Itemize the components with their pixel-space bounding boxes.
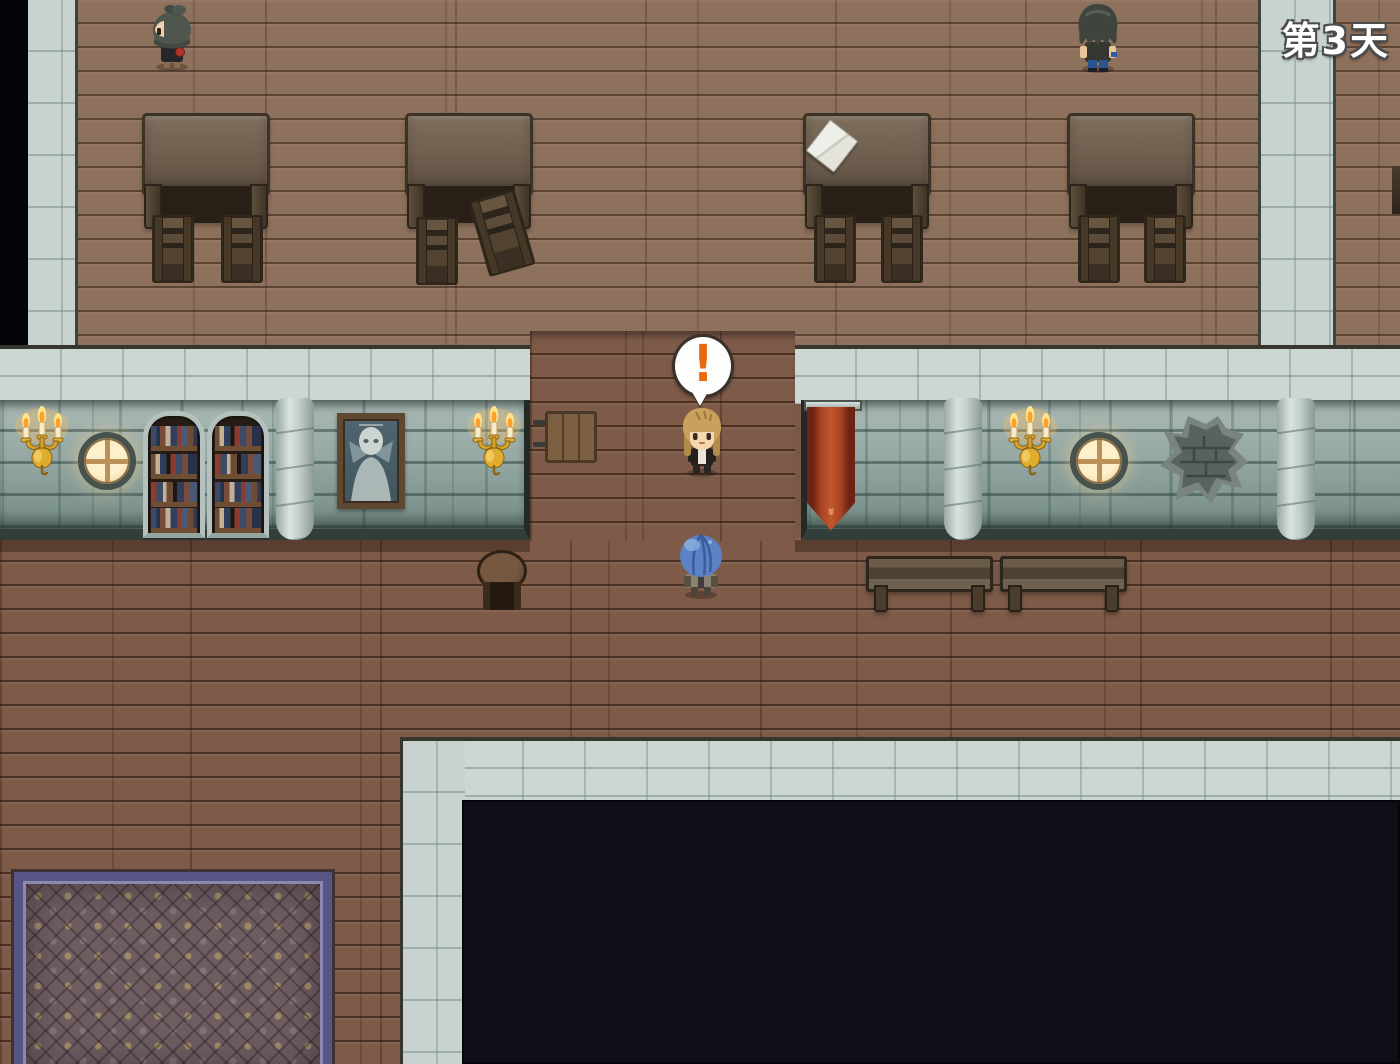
ghost-figure xyxy=(343,419,399,503)
bench xyxy=(866,556,993,608)
book-row xyxy=(215,454,261,479)
stone-pillar xyxy=(1277,398,1315,540)
exclamation-icon: ! xyxy=(693,340,713,391)
blue-helm-npc[interactable] xyxy=(674,530,728,600)
chair xyxy=(1144,215,1186,283)
stone-pillar xyxy=(276,398,314,540)
bookshelf xyxy=(207,411,269,538)
chair xyxy=(814,215,856,283)
pillar-column-left xyxy=(28,0,78,346)
day-counter: 第3天 xyxy=(1282,10,1390,65)
chair xyxy=(416,217,458,285)
player[interactable] xyxy=(678,404,726,478)
right-edge-furniture xyxy=(1392,166,1400,214)
chair xyxy=(881,215,923,283)
wall-walkway-right xyxy=(795,345,1400,404)
lower-walkway-vertical xyxy=(400,741,465,1064)
round-window xyxy=(1070,432,1128,490)
round-stool xyxy=(477,550,527,612)
candelabra-icon xyxy=(466,406,522,476)
wall-shadow-right xyxy=(795,540,1400,552)
book-row xyxy=(151,426,197,451)
book-row xyxy=(215,426,261,451)
exclamation-balloon: ! xyxy=(672,334,734,398)
lower-walkway-horizontal xyxy=(400,737,1400,804)
npc-ponytail[interactable] xyxy=(146,4,198,72)
chair xyxy=(221,215,263,283)
candelabra-icon xyxy=(14,406,70,476)
void-top-left xyxy=(0,0,28,346)
wood-sign xyxy=(545,411,597,463)
dark-pit xyxy=(462,800,1400,1064)
chair xyxy=(152,215,194,283)
chair xyxy=(1078,215,1120,283)
patterned-carpet xyxy=(14,872,332,1064)
wall-shadow-left xyxy=(0,540,530,552)
broken-wall-patch xyxy=(1156,414,1252,510)
npc-shaggy[interactable] xyxy=(1072,2,1124,74)
book-row xyxy=(151,508,197,533)
bookshelf xyxy=(143,411,205,538)
round-window xyxy=(78,432,136,490)
book-row xyxy=(215,482,261,507)
book-row xyxy=(151,482,197,507)
bench xyxy=(1000,556,1127,608)
stone-pillar xyxy=(944,398,982,540)
ghost-painting xyxy=(337,413,405,509)
wall-walkway-left xyxy=(0,345,530,404)
candelabra-icon xyxy=(1002,406,1058,476)
game-viewport[interactable]: ! 第3天 xyxy=(0,0,1400,1064)
book-row xyxy=(215,508,261,533)
book-row xyxy=(151,454,197,479)
